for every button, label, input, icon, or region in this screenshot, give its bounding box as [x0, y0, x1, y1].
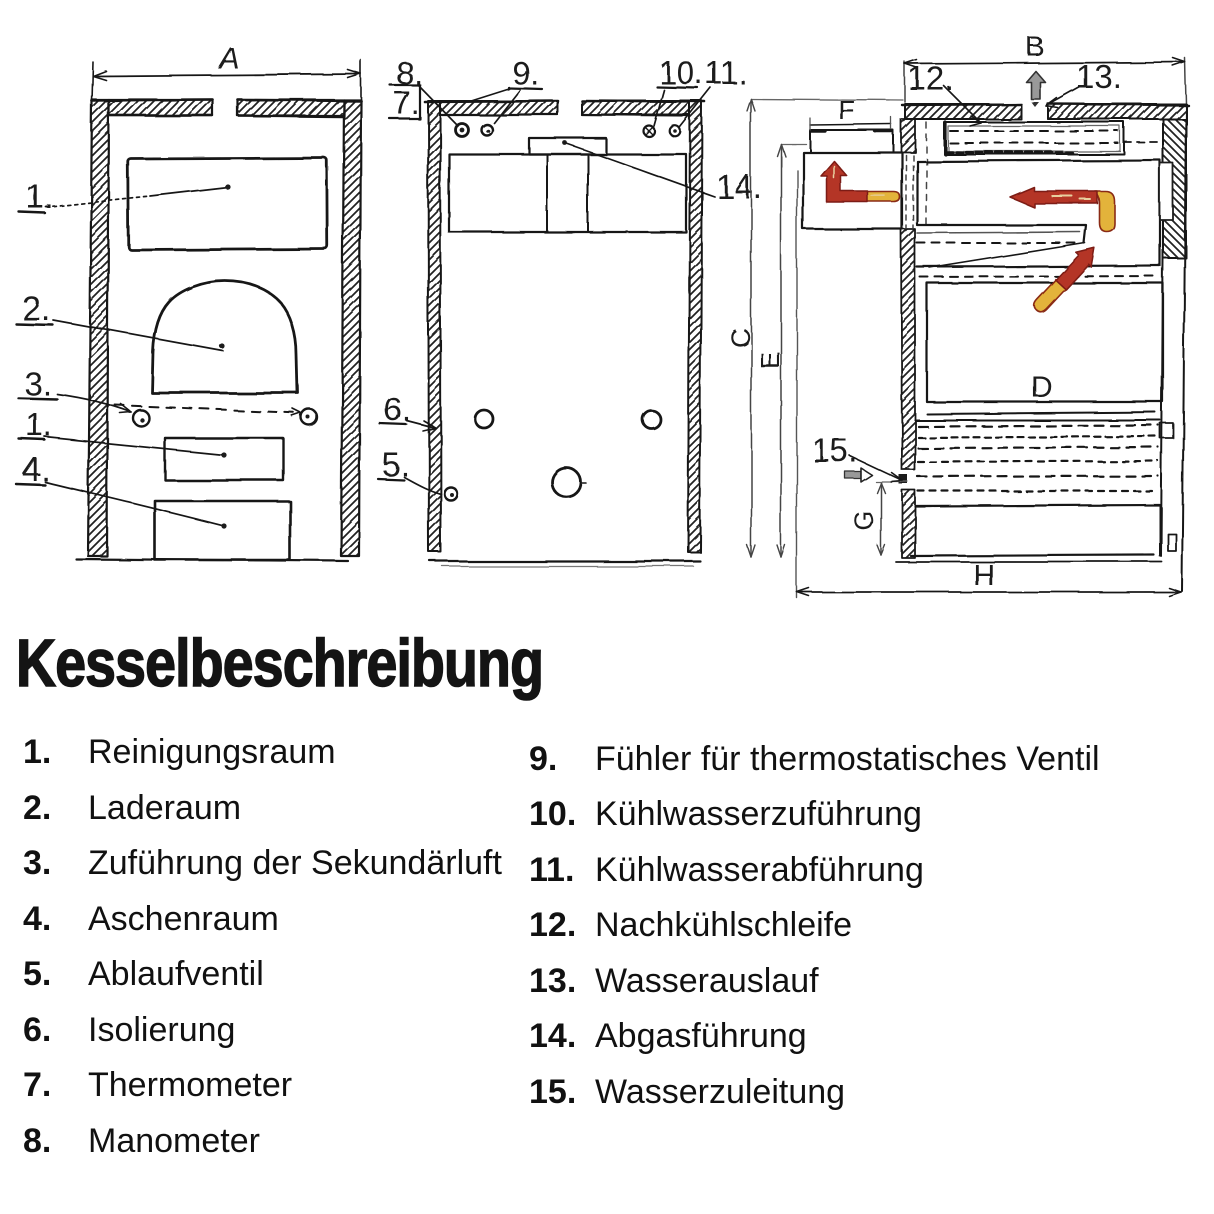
svg-text:12.: 12.	[908, 60, 954, 97]
svg-text:14.: 14.	[716, 168, 762, 205]
svg-text:C: C	[725, 328, 755, 348]
svg-text:10.: 10.	[659, 55, 703, 91]
svg-text:3.: 3.	[24, 365, 52, 402]
svg-text:13.: 13.	[1076, 58, 1122, 95]
svg-text:2.: 2.	[22, 290, 50, 328]
svg-text:E: E	[755, 351, 785, 369]
svg-text:1.: 1.	[26, 178, 54, 215]
svg-text:7.: 7.	[393, 85, 420, 121]
svg-text:H: H	[973, 559, 995, 592]
svg-text:15.: 15.	[812, 432, 858, 469]
svg-text:11.: 11.	[705, 55, 747, 91]
svg-text:D: D	[1031, 371, 1053, 404]
svg-text:9.: 9.	[512, 55, 539, 91]
svg-text:A: A	[217, 42, 239, 75]
svg-text:6.: 6.	[384, 391, 412, 428]
svg-text:G: G	[849, 511, 879, 531]
svg-text:B: B	[1026, 31, 1045, 62]
